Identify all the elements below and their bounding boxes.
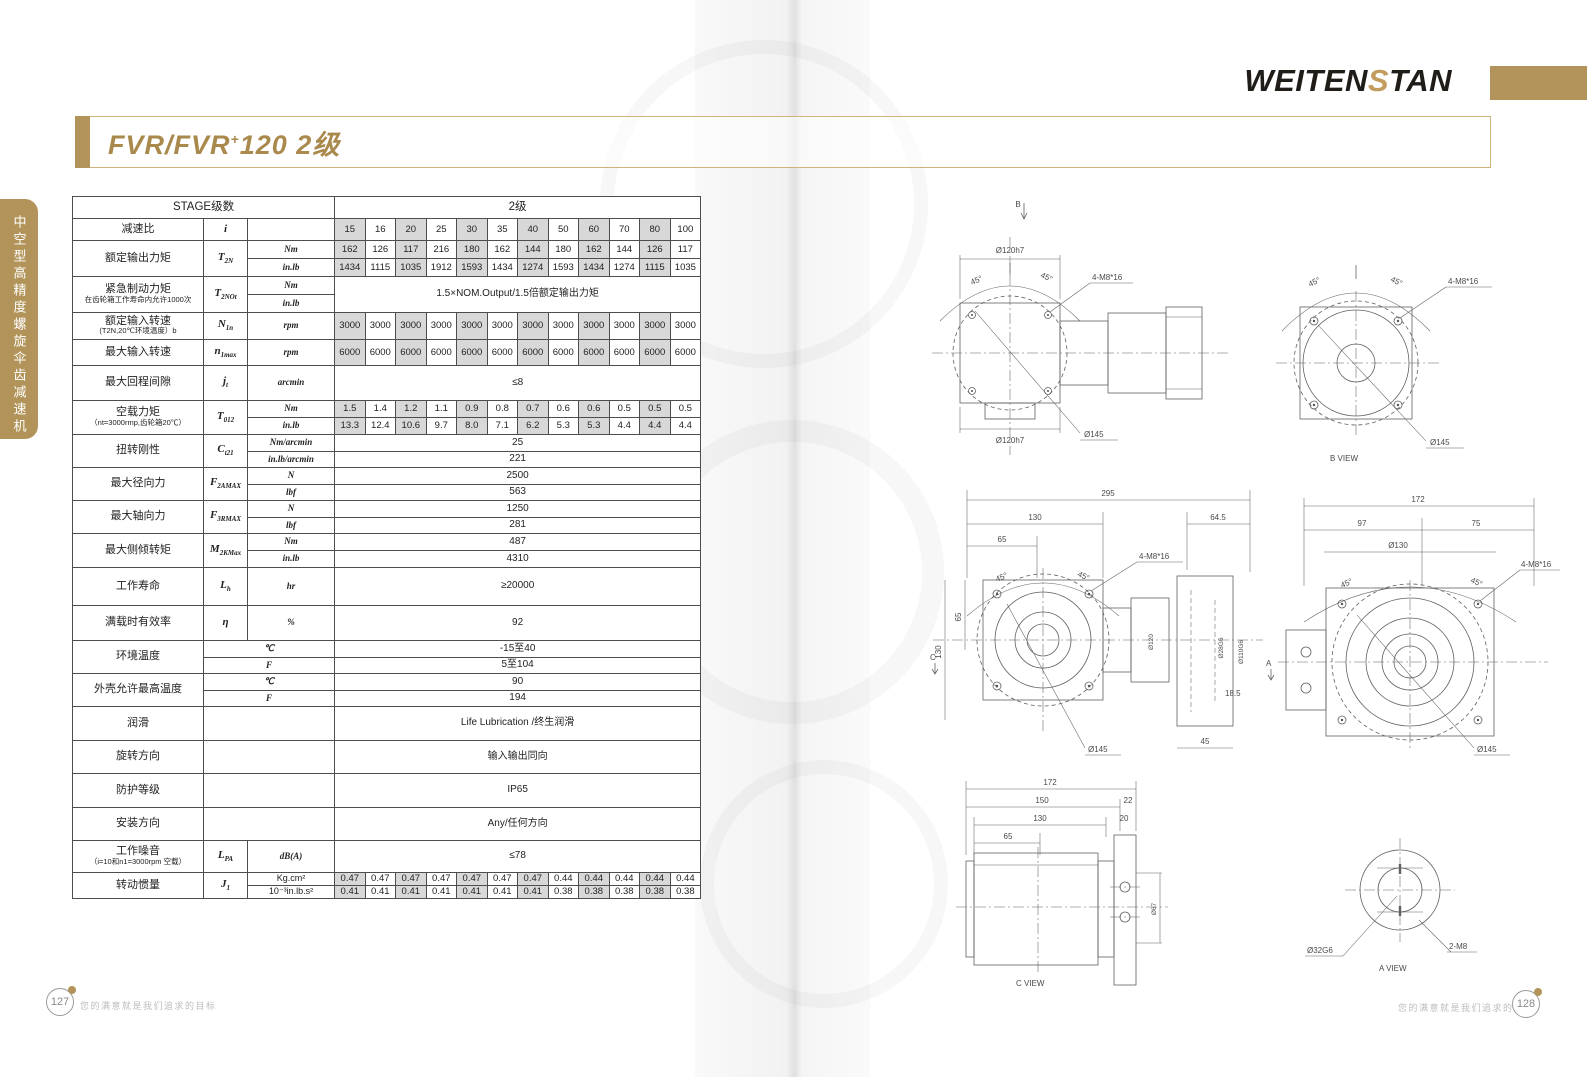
table-span-value: ≤78 xyxy=(335,841,701,873)
table-span-value: 5至104 xyxy=(335,658,701,674)
table-value-cell: 0.38 xyxy=(548,886,579,899)
table-span-value: 563 xyxy=(335,485,701,501)
table-span-value: 4310 xyxy=(335,551,701,568)
table-row-symbol: n1max xyxy=(204,340,248,366)
table-unit-cell: Nm/arcmin xyxy=(248,435,335,452)
table-value-cell: 1274 xyxy=(609,259,640,277)
table-value-cell: 1035 xyxy=(670,259,701,277)
table-span-value: ≥20000 xyxy=(335,568,701,606)
dim-label: 130 xyxy=(1033,814,1047,823)
table-unit-cell: F xyxy=(204,691,335,707)
table-value-cell: 0.41 xyxy=(457,886,488,899)
drawing-b-view: 45° 45° 4-M8*16 Ø145 B VIEW xyxy=(1268,235,1587,465)
table-value-cell: 117 xyxy=(396,241,427,259)
table-value-cell: 3000 xyxy=(518,313,549,340)
table-row-label: 润滑 xyxy=(73,707,204,741)
dim-label: Ø120h7 xyxy=(996,246,1025,255)
table-value-cell: 0.44 xyxy=(548,873,579,886)
table-value-cell: 0.41 xyxy=(365,886,396,899)
table-row-label: 环境温度 xyxy=(73,641,204,674)
table-row-label: 扭转刚性 xyxy=(73,435,204,468)
bolt-callout: 4-M8*16 xyxy=(1092,273,1123,282)
table-value-cell: 10.6 xyxy=(396,418,427,435)
table-span-value: 92 xyxy=(335,606,701,641)
table-value-cell: 144 xyxy=(518,241,549,259)
table-value-cell: 117 xyxy=(670,241,701,259)
table-value-cell: 180 xyxy=(548,241,579,259)
table-value-cell: 1274 xyxy=(518,259,549,277)
table-value-cell: 126 xyxy=(365,241,396,259)
table-unit-cell xyxy=(204,707,335,741)
table-unit-cell xyxy=(204,741,335,774)
drawing-front-view-top: B Ø120h7 45° 45° 4-M8*16 Ø145 Ø120h7 xyxy=(928,193,1263,478)
table-value-cell: 40 xyxy=(518,219,549,241)
table-value-cell: 0.38 xyxy=(640,886,671,899)
dim-label: 64.5 xyxy=(1210,513,1226,522)
brand-gold-block xyxy=(1490,66,1587,100)
table-value-cell: 6000 xyxy=(365,340,396,366)
bolt-callout: 4-M8*16 xyxy=(1139,552,1170,561)
table-span-value: 1250 xyxy=(335,501,701,518)
dia-callout: Ø145 xyxy=(1088,745,1108,754)
table-value-cell: 0.44 xyxy=(670,873,701,886)
table-unit-cell: ℃ xyxy=(204,641,335,658)
table-row-symbol: T2NOt xyxy=(204,277,248,313)
table-span-value: 1.5×NOM.Output/1.5倍额定输出力矩 xyxy=(335,277,701,313)
dim-label: Ø110G6 xyxy=(1238,640,1245,664)
table-value-cell: 162 xyxy=(579,241,610,259)
dim-label: 150 xyxy=(1035,796,1049,805)
table-unit-cell: arcmin xyxy=(248,366,335,401)
table-row-symbol: i xyxy=(204,219,248,241)
table-unit-cell: Kg.cm² xyxy=(248,873,335,886)
table-value-cell: 4.4 xyxy=(609,418,640,435)
table-value-cell: 13.3 xyxy=(335,418,366,435)
bolt-callout: 4-M8*16 xyxy=(1448,277,1479,286)
dia-callout: Ø145 xyxy=(1477,745,1497,754)
table-value-cell: 3000 xyxy=(548,313,579,340)
angle-label: 45° xyxy=(1307,275,1322,288)
table-unit-cell: N xyxy=(248,501,335,518)
dim-label: Ø130 xyxy=(1388,541,1408,550)
dim-label: Ø67 xyxy=(1151,902,1158,915)
table-unit-cell: hr xyxy=(248,568,335,606)
drawing-a-view: Ø32G6 2-M8 A VIEW xyxy=(1285,828,1505,988)
table-value-cell: 1593 xyxy=(548,259,579,277)
table-value-cell: 1434 xyxy=(579,259,610,277)
brand-logo: WEITENSTAN xyxy=(1244,63,1452,99)
table-value-cell: 6000 xyxy=(609,340,640,366)
table-value-cell: 0.7 xyxy=(518,401,549,418)
table-value-cell: 0.38 xyxy=(579,886,610,899)
table-value-cell: 4.4 xyxy=(670,418,701,435)
table-row-symbol: T012 xyxy=(204,401,248,435)
table-span-value: Life Lubrication /终生润滑 xyxy=(335,707,701,741)
drawing-side-view: 295 130 65 64.5 130 65 C 45° 45° 4-M8*16… xyxy=(925,480,1270,775)
table-value-cell: 0.41 xyxy=(518,886,549,899)
table-row-label: 工作噪音（i=10和n1=3000rpm 空载） xyxy=(73,841,204,873)
view-title: B VIEW xyxy=(1330,454,1358,463)
table-span-value: IP65 xyxy=(335,774,701,808)
table-value-cell: 180 xyxy=(457,241,488,259)
table-row-label: 外壳允许最高温度 xyxy=(73,674,204,707)
table-span-value: 281 xyxy=(335,518,701,534)
table-value-cell: 3000 xyxy=(457,313,488,340)
table-value-cell: 1434 xyxy=(335,259,366,277)
view-title: A VIEW xyxy=(1379,964,1407,973)
table-value-cell: 50 xyxy=(548,219,579,241)
angle-label: 45° xyxy=(1389,275,1404,288)
page-title-suffix: 120 2级 xyxy=(240,130,341,160)
table-value-cell: 6000 xyxy=(579,340,610,366)
table-value-cell: 15 xyxy=(335,219,366,241)
dim-label: Ø28G6 xyxy=(1218,637,1225,658)
page-title: FVR/FVR+120 2级 xyxy=(108,123,340,162)
table-unit-cell: Nm xyxy=(248,241,335,259)
table-value-cell: 1115 xyxy=(640,259,671,277)
table-unit-cell: rpm xyxy=(248,313,335,340)
table-row-symbol: LPA xyxy=(204,841,248,873)
table-value-cell: 6000 xyxy=(457,340,488,366)
dia-callout: Ø145 xyxy=(1084,430,1104,439)
table-value-cell: 0.5 xyxy=(609,401,640,418)
table-row-sublabel: 在齿轮箱工作寿命内允许1000次 xyxy=(73,296,203,305)
table-row-label: 额定输出力矩 xyxy=(73,241,204,277)
table-row-label: 安装方向 xyxy=(73,808,204,841)
table-unit-cell: in.lb xyxy=(248,418,335,435)
dim-label: 65 xyxy=(998,535,1007,544)
table-value-cell: 3000 xyxy=(609,313,640,340)
table-value-cell: 30 xyxy=(457,219,488,241)
table-span-value: -15至40 xyxy=(335,641,701,658)
table-value-cell: 0.8 xyxy=(487,401,518,418)
table-row-label: 空载力矩（nt=3000rmp,齿轮箱20℃） xyxy=(73,401,204,435)
table-header-stage: STAGE级数 xyxy=(73,197,335,219)
dim-label: 172 xyxy=(1411,495,1425,504)
table-value-cell: 0.38 xyxy=(609,886,640,899)
dia-callout: Ø32G6 xyxy=(1307,946,1333,955)
table-value-cell: 0.9 xyxy=(457,401,488,418)
table-value-cell: 0.47 xyxy=(396,873,427,886)
table-value-cell: 3000 xyxy=(640,313,671,340)
table-value-cell: 3000 xyxy=(487,313,518,340)
footer-slogan-left: 您的满意就是我们追求的目标 xyxy=(80,999,217,1012)
table-value-cell: 0.41 xyxy=(426,886,457,899)
table-unit-cell: in.lb xyxy=(248,551,335,568)
table-value-cell: 0.5 xyxy=(670,401,701,418)
dim-label: 65 xyxy=(954,612,963,621)
table-value-cell: 6000 xyxy=(640,340,671,366)
table-value-cell: 6.2 xyxy=(518,418,549,435)
table-row-symbol: J1 xyxy=(204,873,248,899)
table-header-stage-value: 2级 xyxy=(335,197,701,219)
table-value-cell: 3000 xyxy=(579,313,610,340)
table-row-symbol: η xyxy=(204,606,248,641)
table-value-cell: 3000 xyxy=(365,313,396,340)
angle-label: 45° xyxy=(1076,570,1091,583)
table-value-cell: 0.44 xyxy=(609,873,640,886)
table-value-cell: 144 xyxy=(609,241,640,259)
table-unit-cell: ℃ xyxy=(204,674,335,691)
table-span-value: 221 xyxy=(335,452,701,468)
table-value-cell: 12.4 xyxy=(365,418,396,435)
view-arrow-label: B xyxy=(1015,200,1020,209)
table-value-cell: 1115 xyxy=(365,259,396,277)
angle-label: 45° xyxy=(994,571,1009,584)
angle-label: 45° xyxy=(1469,576,1484,589)
table-span-value: 90 xyxy=(335,674,701,691)
spec-table: STAGE级数2级减速比i1516202530354050607080100额定… xyxy=(72,196,701,899)
bolt-callout: 4-M8*16 xyxy=(1521,560,1552,569)
table-row-label: 最大侧倾转矩 xyxy=(73,534,204,568)
table-value-cell: 60 xyxy=(579,219,610,241)
sidebar-category-tab: 中空型高精度螺旋伞齿减速机 xyxy=(0,199,38,439)
table-value-cell: 0.47 xyxy=(487,873,518,886)
table-value-cell: 0.6 xyxy=(579,401,610,418)
table-unit-cell xyxy=(204,808,335,841)
table-value-cell: 0.47 xyxy=(518,873,549,886)
table-unit-cell: in.lb/arcmin xyxy=(248,452,335,468)
page-number-dot xyxy=(68,986,76,994)
table-value-cell: 6000 xyxy=(426,340,457,366)
dim-label: 75 xyxy=(1472,519,1481,528)
angle-label: 45° xyxy=(1039,271,1054,284)
table-unit-cell: F xyxy=(204,658,335,674)
dim-label: 22 xyxy=(1124,796,1133,805)
spec-table-wrap: STAGE级数2级减速比i1516202530354050607080100额定… xyxy=(72,196,701,899)
table-unit-cell: in.lb xyxy=(248,259,335,277)
table-value-cell: 3000 xyxy=(670,313,701,340)
table-unit-cell: in.lb xyxy=(248,295,335,313)
view-title: C VIEW xyxy=(1016,979,1045,988)
table-row-label: 满载时有效率 xyxy=(73,606,204,641)
table-row-label: 转动惯量 xyxy=(73,873,204,899)
brand-logo-pre: WEITEN xyxy=(1244,63,1368,98)
table-value-cell: 1434 xyxy=(487,259,518,277)
table-unit-cell: Nm xyxy=(248,534,335,551)
dim-label: Ø120h7 xyxy=(996,436,1025,445)
table-span-value: 2500 xyxy=(335,468,701,485)
table-value-cell: 5.3 xyxy=(548,418,579,435)
table-value-cell: 6000 xyxy=(487,340,518,366)
table-row-label: 最大轴向力 xyxy=(73,501,204,534)
table-row-label: 减速比 xyxy=(73,219,204,241)
view-arrow-label: C xyxy=(930,653,936,662)
table-unit-cell: N xyxy=(248,468,335,485)
table-span-value: 194 xyxy=(335,691,701,707)
dim-label: 20 xyxy=(1120,814,1129,823)
brand-logo-s: S xyxy=(1368,63,1389,98)
table-value-cell: 1593 xyxy=(457,259,488,277)
table-row-symbol: T2N xyxy=(204,241,248,277)
table-value-cell: 1035 xyxy=(396,259,427,277)
table-value-cell: 6000 xyxy=(548,340,579,366)
page-number-dot xyxy=(1534,988,1542,996)
table-span-value: Any/任何方向 xyxy=(335,808,701,841)
section-title-accent xyxy=(75,116,90,168)
table-value-cell: 0.5 xyxy=(640,401,671,418)
table-value-cell: 0.47 xyxy=(457,873,488,886)
table-row-label: 防护等级 xyxy=(73,774,204,808)
drawing-c-view: 172 150 22 130 20 65 Ø67 C VIEW xyxy=(928,775,1258,990)
table-row-symbol: Ct21 xyxy=(204,435,248,468)
table-value-cell: 100 xyxy=(670,219,701,241)
table-value-cell: 216 xyxy=(426,241,457,259)
table-value-cell: 4.4 xyxy=(640,418,671,435)
dim-label: 97 xyxy=(1358,519,1367,528)
dim-label: 65 xyxy=(1004,832,1013,841)
table-value-cell: 6000 xyxy=(518,340,549,366)
page-title-prefix: FVR/FVR xyxy=(108,130,231,160)
table-value-cell: 7.1 xyxy=(487,418,518,435)
table-value-cell: 1.4 xyxy=(365,401,396,418)
table-value-cell: 0.41 xyxy=(335,886,366,899)
table-value-cell: 0.47 xyxy=(365,873,396,886)
table-unit-cell: % xyxy=(248,606,335,641)
table-value-cell: 6000 xyxy=(335,340,366,366)
table-value-cell: 3000 xyxy=(426,313,457,340)
table-value-cell: 25 xyxy=(426,219,457,241)
table-value-cell: 162 xyxy=(487,241,518,259)
table-row-label: 旋转方向 xyxy=(73,741,204,774)
dim-label: 172 xyxy=(1043,778,1057,787)
table-row-symbol: M2KMax xyxy=(204,534,248,568)
table-value-cell: 0.44 xyxy=(579,873,610,886)
table-value-cell: 1912 xyxy=(426,259,457,277)
angle-label: 45° xyxy=(969,274,984,287)
table-value-cell: 0.38 xyxy=(670,886,701,899)
table-value-cell: 6000 xyxy=(396,340,427,366)
table-value-cell: 0.44 xyxy=(640,873,671,886)
table-unit-cell xyxy=(204,774,335,808)
table-value-cell: 0.6 xyxy=(548,401,579,418)
table-row-label: 最大输入转速 xyxy=(73,340,204,366)
table-row-label: 紧急制动力矩在齿轮箱工作寿命内允许1000次 xyxy=(73,277,204,313)
table-span-value: 487 xyxy=(335,534,701,551)
table-value-cell: 3000 xyxy=(396,313,427,340)
brand-logo-post: TAN xyxy=(1389,63,1452,98)
table-unit-cell: Nm xyxy=(248,401,335,418)
table-value-cell: 20 xyxy=(396,219,427,241)
table-value-cell: 3000 xyxy=(335,313,366,340)
dim-label: 295 xyxy=(1101,489,1115,498)
table-value-cell: 16 xyxy=(365,219,396,241)
background-gear-art xyxy=(700,760,948,1008)
table-value-cell: 70 xyxy=(609,219,640,241)
table-row-sublabel: （i=10和n1=3000rpm 空载） xyxy=(73,858,203,867)
table-row-label: 最大径向力 xyxy=(73,468,204,501)
page-title-sup: + xyxy=(231,131,240,147)
table-value-cell: 1.5 xyxy=(335,401,366,418)
table-value-cell: 0.41 xyxy=(487,886,518,899)
table-value-cell: 80 xyxy=(640,219,671,241)
table-value-cell: 35 xyxy=(487,219,518,241)
table-row-symbol: jt xyxy=(204,366,248,401)
table-row-sublabel: （nt=3000rmp,齿轮箱20℃） xyxy=(73,419,203,428)
table-row-symbol: N1n xyxy=(204,313,248,340)
bolt-callout: 2-M8 xyxy=(1449,942,1468,951)
drawing-front-view-a: 172 97 75 Ø130 45° 45° 4-M8*16 Ø145 A xyxy=(1262,490,1562,760)
table-span-value: ≤8 xyxy=(335,366,701,401)
table-value-cell: 6000 xyxy=(670,340,701,366)
table-span-value: 输入输出同向 xyxy=(335,741,701,774)
table-row-label: 工作寿命 xyxy=(73,568,204,606)
table-value-cell: 0.47 xyxy=(426,873,457,886)
dim-label: 130 xyxy=(1028,513,1042,522)
view-arrow-label: A xyxy=(1266,659,1272,668)
dim-label: Ø120 xyxy=(1148,634,1155,650)
table-unit-cell: dB(A) xyxy=(248,841,335,873)
table-unit-cell: lbf xyxy=(248,485,335,501)
table-row-label: 额定输入转速(T2N,20℃环境温度）b xyxy=(73,313,204,340)
table-value-cell: 1.2 xyxy=(396,401,427,418)
table-value-cell: 0.47 xyxy=(335,873,366,886)
table-row-symbol: F2AMAX xyxy=(204,468,248,501)
table-row-symbol: F3RMAX xyxy=(204,501,248,534)
table-span-value: 25 xyxy=(335,435,701,452)
table-value-cell: 0.41 xyxy=(396,886,427,899)
table-value-cell: 5.3 xyxy=(579,418,610,435)
table-row-symbol: Lh xyxy=(204,568,248,606)
table-value-cell: 126 xyxy=(640,241,671,259)
dia-callout: Ø145 xyxy=(1430,438,1450,447)
dim-label: 18.5 xyxy=(1225,689,1241,698)
table-unit-cell: Nm xyxy=(248,277,335,295)
dim-label: 45 xyxy=(1201,737,1210,746)
table-value-cell: 8.0 xyxy=(457,418,488,435)
table-unit-cell: lbf xyxy=(248,518,335,534)
table-unit-cell: rpm xyxy=(248,340,335,366)
table-row-label: 最大回程间隙 xyxy=(73,366,204,401)
table-row-sublabel: (T2N,20℃环境温度）b xyxy=(73,327,203,336)
table-unit-cell xyxy=(248,219,335,241)
sidebar-category-label: 中空型高精度螺旋伞齿减速机 xyxy=(10,215,29,436)
table-unit-cell: 10⁻³in.lb.s² xyxy=(248,886,335,899)
table-value-cell: 162 xyxy=(335,241,366,259)
table-value-cell: 9.7 xyxy=(426,418,457,435)
table-value-cell: 1.1 xyxy=(426,401,457,418)
